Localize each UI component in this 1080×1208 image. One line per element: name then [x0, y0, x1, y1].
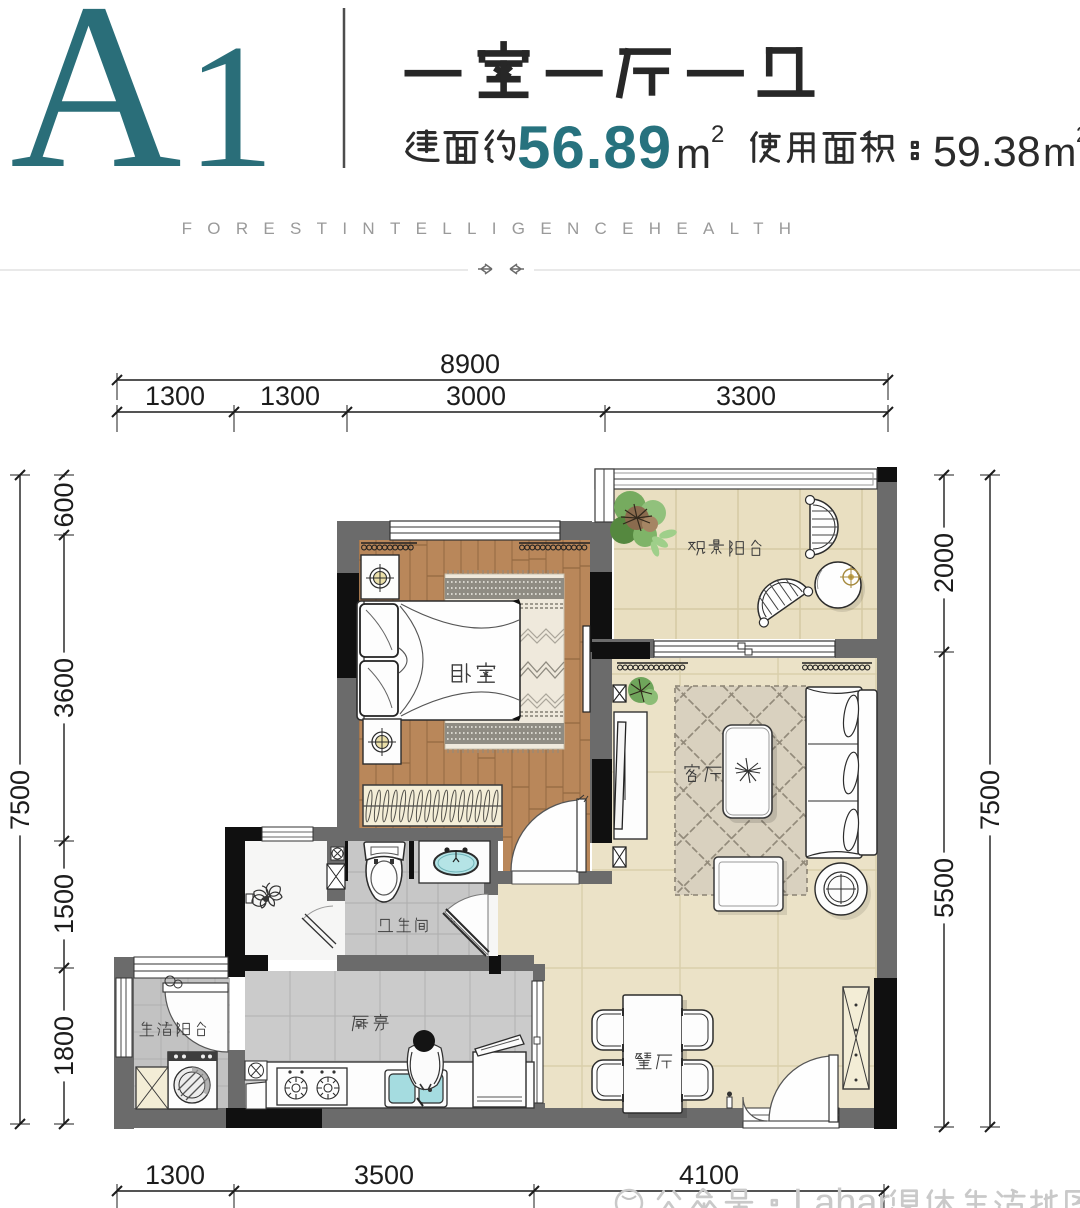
svg-text:8900: 8900	[440, 349, 500, 379]
svg-text:56.89: 56.89	[517, 114, 672, 181]
svg-text:1300: 1300	[260, 381, 320, 411]
svg-text:1500: 1500	[49, 874, 79, 934]
svg-text:2: 2	[1076, 122, 1080, 147]
svg-text:1: 1	[186, 7, 275, 205]
svg-text:600: 600	[49, 482, 79, 527]
svg-text:1300: 1300	[145, 381, 205, 411]
svg-text:1800: 1800	[49, 1016, 79, 1076]
svg-text:A: A	[10, 0, 182, 218]
svg-text:1300: 1300	[145, 1160, 205, 1190]
svg-text:59.38: 59.38	[933, 128, 1041, 176]
svg-text:4100: 4100	[679, 1160, 739, 1190]
svg-text:3600: 3600	[49, 658, 79, 718]
svg-text:m: m	[1043, 131, 1076, 175]
svg-text:7500: 7500	[975, 770, 1005, 830]
svg-text:3300: 3300	[716, 381, 776, 411]
svg-text:3000: 3000	[446, 381, 506, 411]
svg-text:7500: 7500	[5, 770, 35, 830]
svg-text:m: m	[676, 130, 711, 177]
svg-text:FORESTINTELLIGENCEHEALTH: FORESTINTELLIGENCEHEALTH	[182, 219, 807, 238]
svg-text:5500: 5500	[929, 858, 959, 918]
svg-text:3500: 3500	[354, 1160, 414, 1190]
svg-text:2000: 2000	[929, 533, 959, 593]
svg-text:2: 2	[711, 121, 724, 148]
svg-text:Lahar: Lahar	[793, 1182, 891, 1208]
